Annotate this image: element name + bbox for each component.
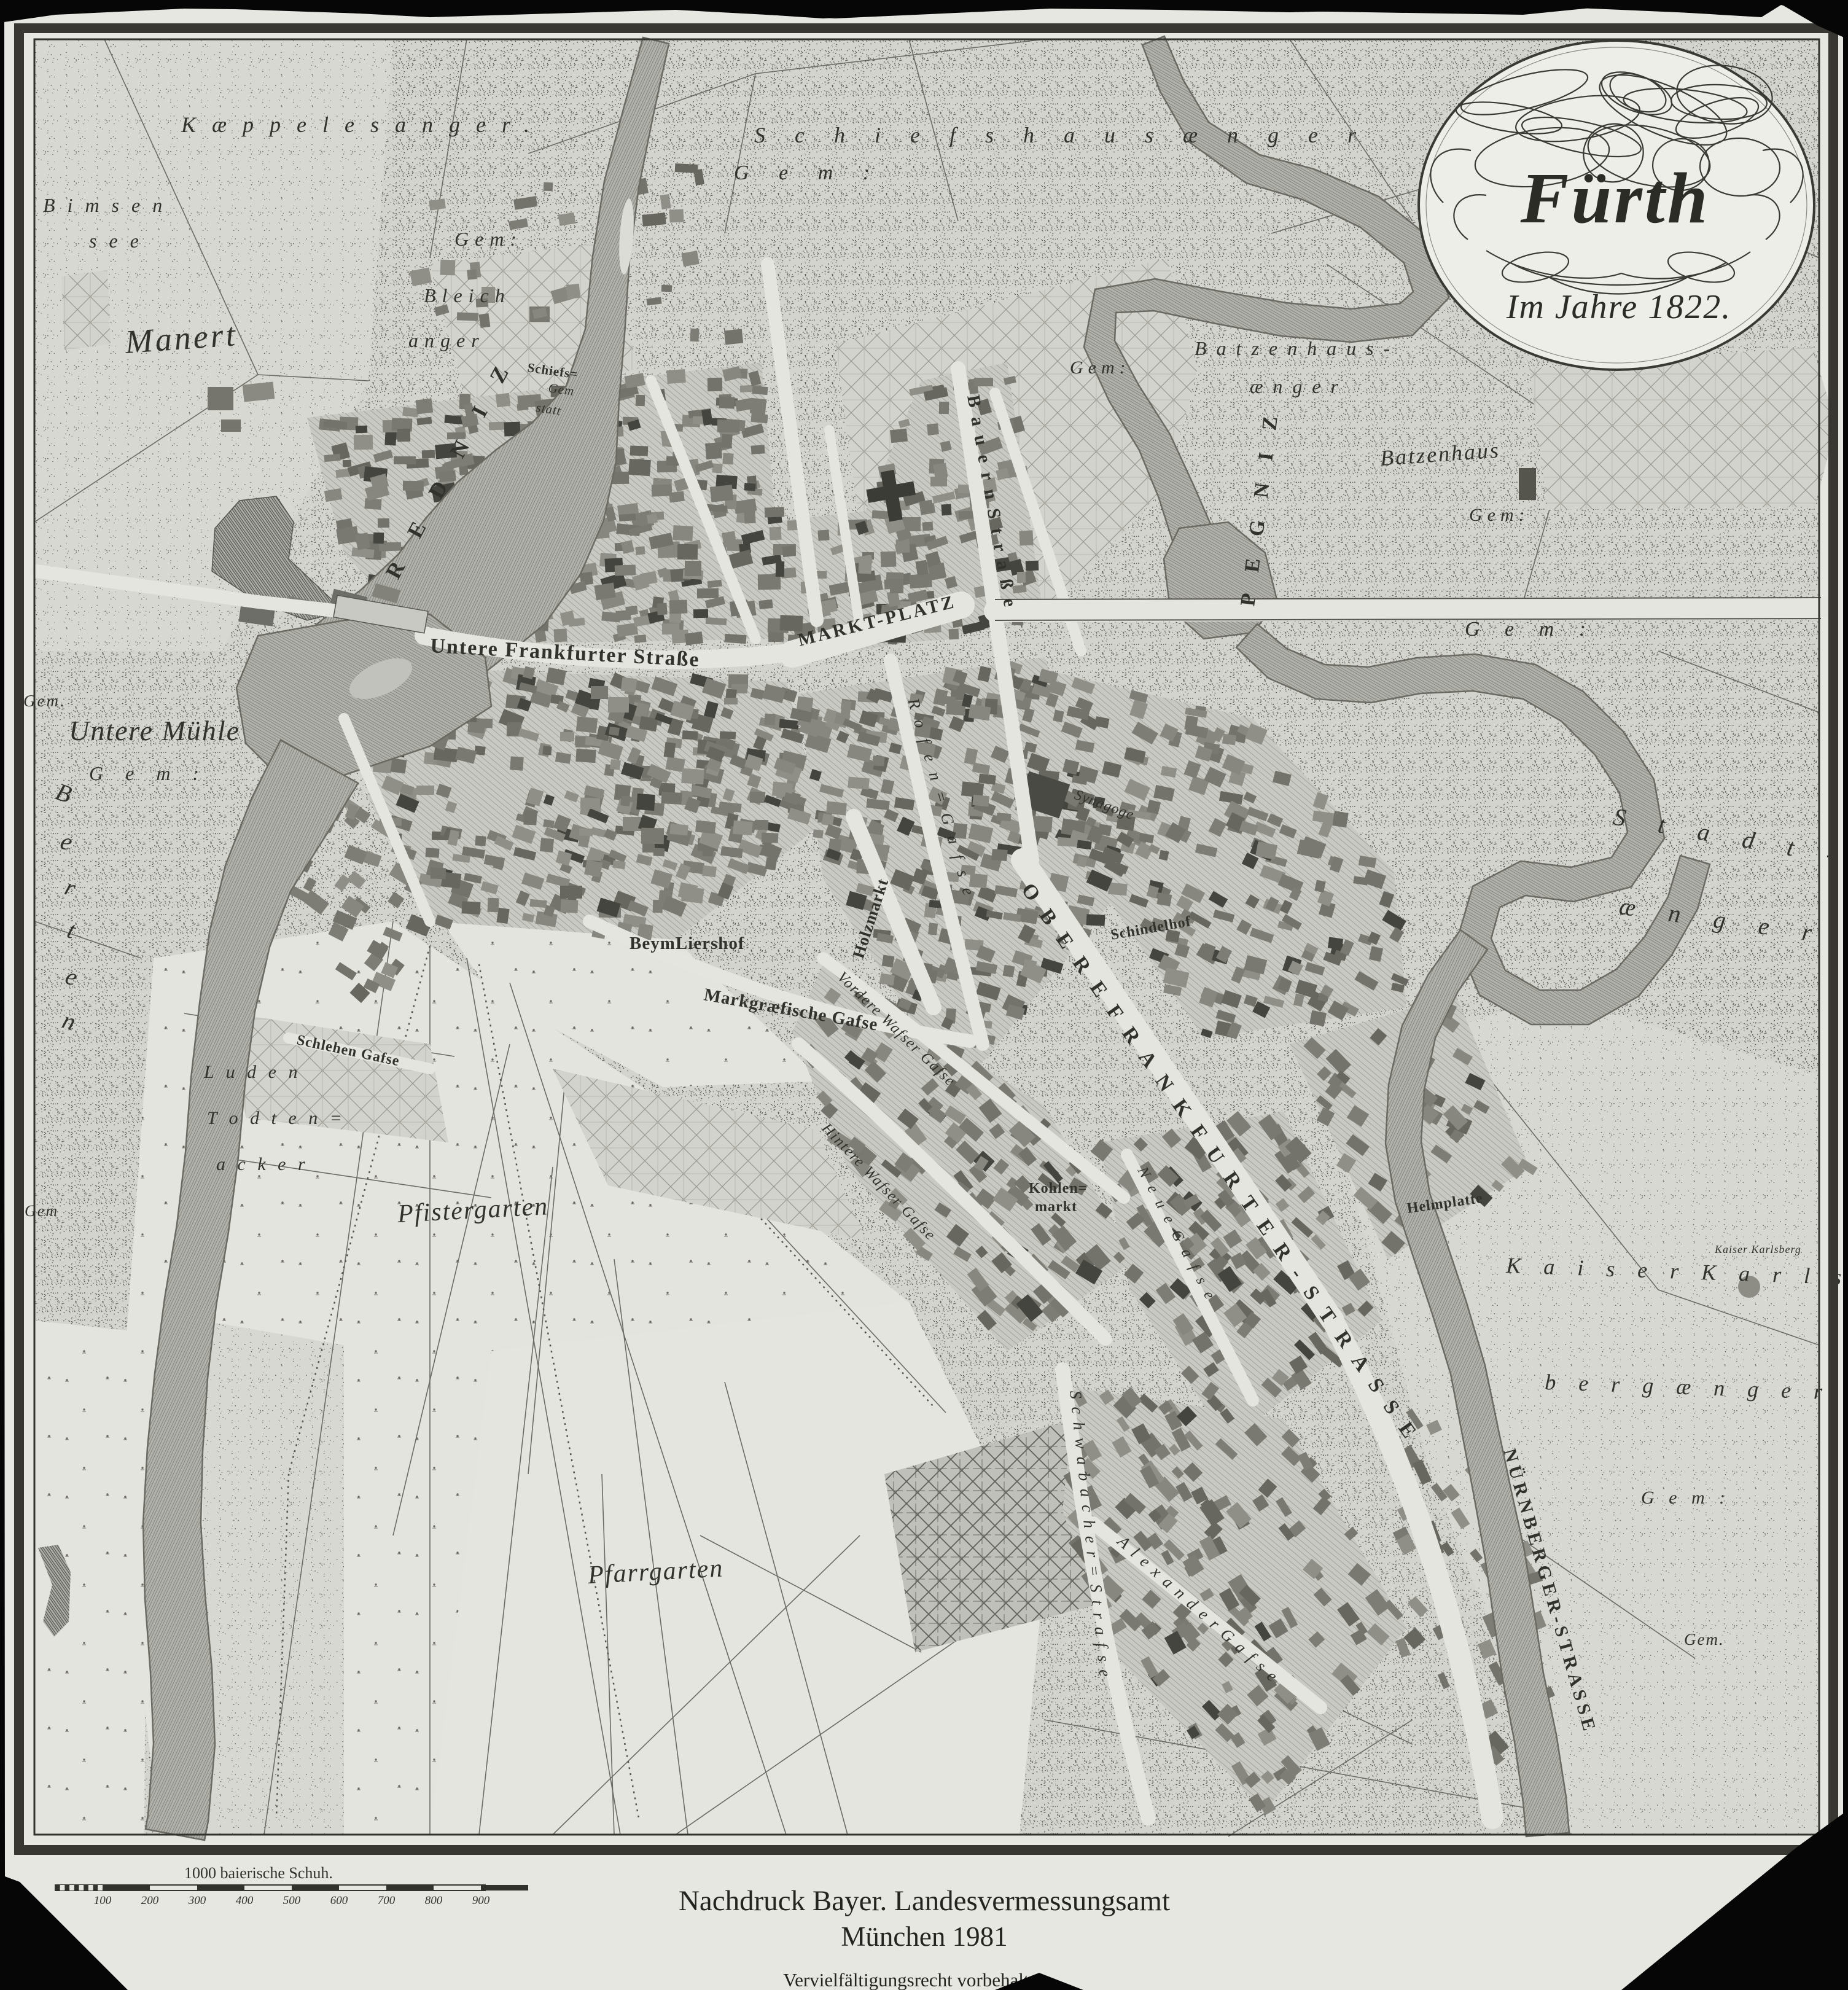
svg-text:Gem:: Gem: — [1070, 357, 1131, 378]
svg-text:Bleich: Bleich — [424, 284, 511, 306]
svg-text:Kaiser Karlsberg: Kaiser Karlsberg — [1714, 1243, 1801, 1255]
svg-text:Batzenhaus-: Batzenhaus- — [1195, 337, 1400, 359]
svg-text:Manert: Manert — [123, 316, 239, 361]
svg-text:Gem:: Gem: — [454, 228, 523, 250]
svg-text:600: 600 — [330, 1894, 348, 1907]
svg-text:Gem:: Gem: — [1469, 505, 1530, 525]
svg-text:700: 700 — [378, 1894, 396, 1907]
svg-text:Gem.: Gem. — [23, 692, 66, 710]
svg-text:G e m :: G e m : — [89, 762, 208, 784]
svg-text:Im Jahre 1822.: Im Jahre 1822. — [1506, 288, 1732, 326]
svg-text:500: 500 — [283, 1894, 301, 1907]
svg-text:G e m :: G e m : — [1465, 618, 1596, 641]
svg-text:400: 400 — [236, 1894, 254, 1907]
svg-text:München 1981: München 1981 — [841, 1921, 1007, 1952]
svg-text:see: see — [89, 230, 151, 252]
svg-text:Kæppelesanger.: Kæppelesanger. — [181, 112, 545, 137]
svg-text:Gem.: Gem. — [1684, 1630, 1725, 1649]
svg-text:Bimsen: Bimsen — [43, 194, 174, 216]
svg-text:Untere Mühle: Untere Mühle — [69, 715, 240, 746]
svg-text:900: 900 — [472, 1894, 490, 1907]
svg-text:300: 300 — [188, 1894, 206, 1907]
svg-text:Nachdruck Bayer. Landesvermes: Nachdruck Bayer. Landesvermessungsamt — [679, 1885, 1170, 1917]
svg-text:Kohlen=: Kohlen= — [1029, 1180, 1087, 1196]
svg-text:anger: anger — [408, 329, 485, 351]
svg-text:G e m :: G e m : — [1641, 1488, 1730, 1508]
svg-text:Fürth: Fürth — [1520, 158, 1710, 238]
svg-text:L u d e n: L u d e n — [203, 1062, 301, 1082]
svg-text:markt: markt — [1035, 1199, 1077, 1215]
svg-text:BeymLiershof: BeymLiershof — [630, 934, 745, 953]
svg-text:T o d t e n =: T o d t e n = — [207, 1108, 346, 1128]
svg-text:Schiefshausænger: Schiefshausænger — [754, 123, 1386, 147]
svg-text:G e m :: G e m : — [734, 162, 882, 184]
svg-text:100: 100 — [94, 1894, 112, 1907]
svg-text:800: 800 — [425, 1894, 443, 1907]
svg-text:ænger: ænger — [1250, 375, 1348, 397]
svg-text:Gem: Gem — [25, 1202, 58, 1220]
svg-text:a c k e r: a c k e r — [216, 1154, 309, 1174]
svg-text:200: 200 — [141, 1894, 159, 1907]
svg-text:1000 baierische Schuh.: 1000 baierische Schuh. — [184, 1864, 333, 1882]
